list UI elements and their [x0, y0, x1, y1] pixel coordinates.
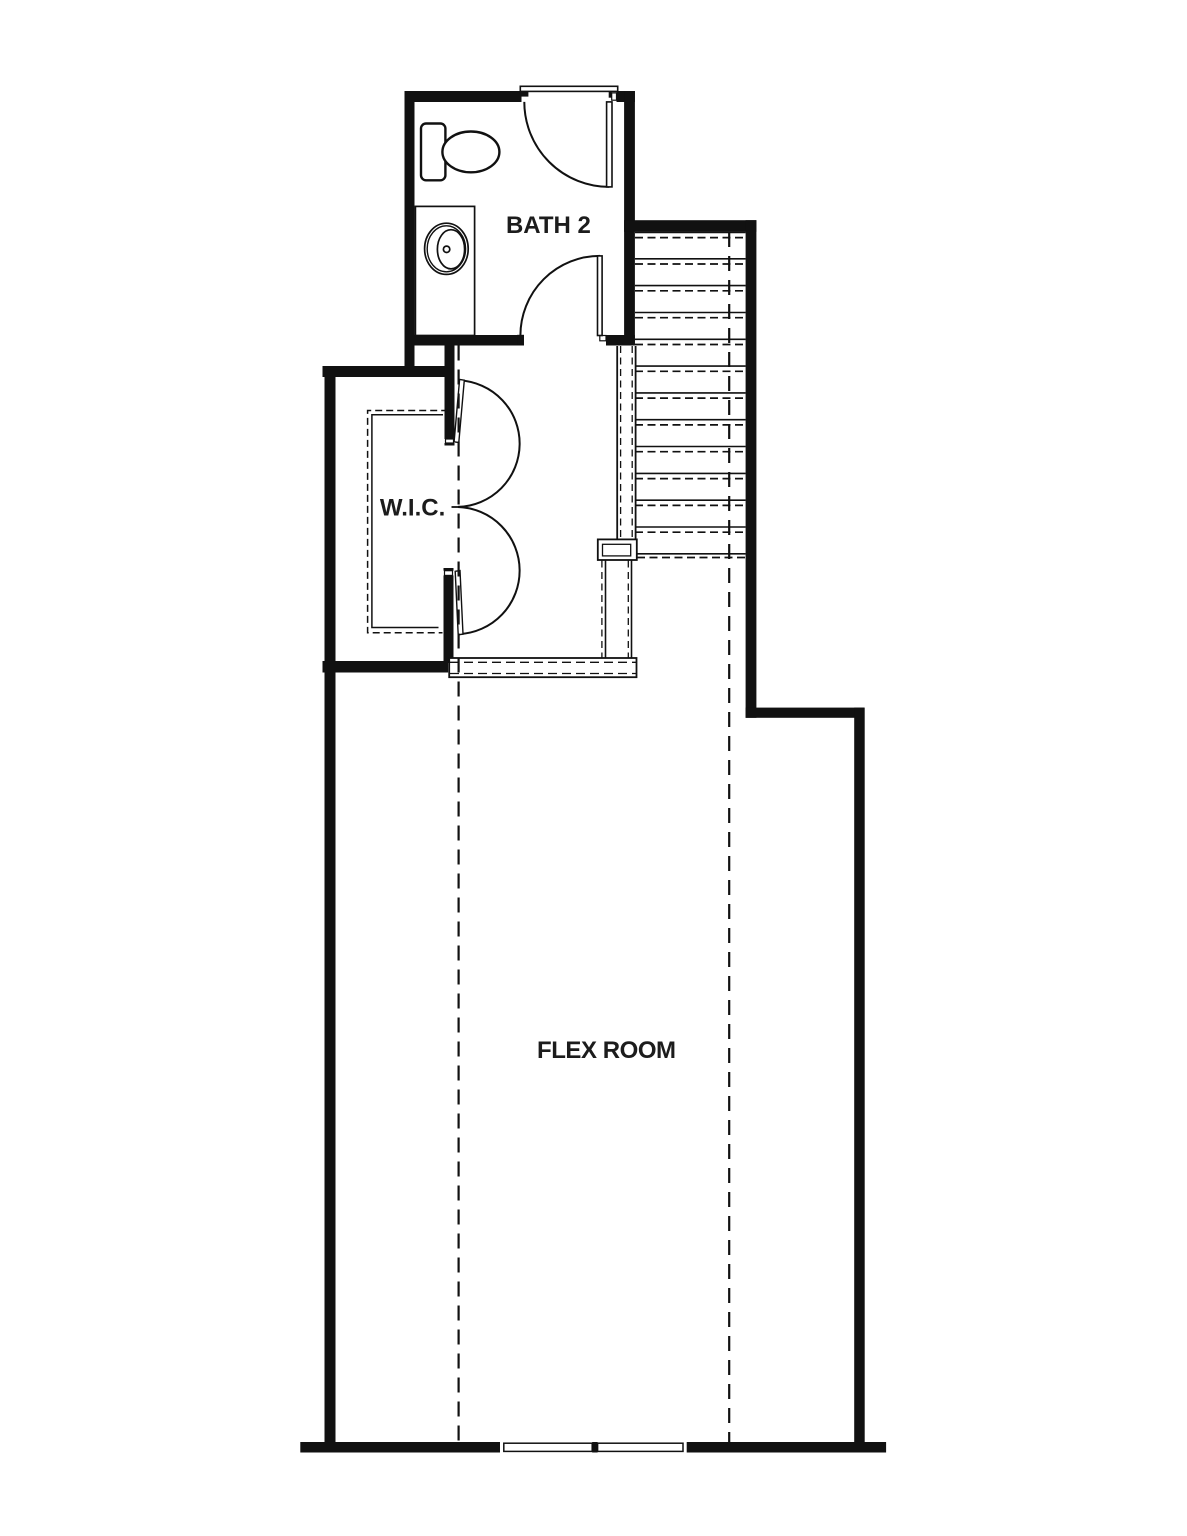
svg-text:FLEX ROOM: FLEX ROOM: [537, 1037, 676, 1064]
svg-text:BATH 2: BATH 2: [506, 212, 591, 239]
svg-text:W.I.C.: W.I.C.: [380, 494, 445, 521]
